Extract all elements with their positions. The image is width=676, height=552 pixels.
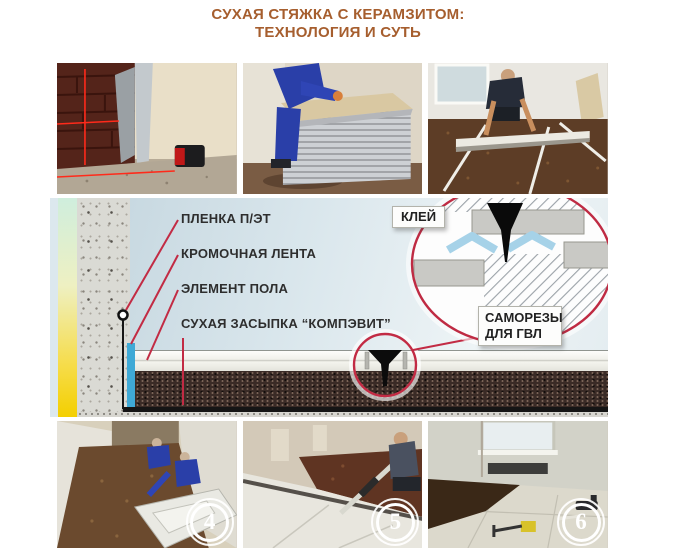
photo-step-5-screeding: 5 xyxy=(243,421,423,548)
keramzit-leveling-image xyxy=(428,63,608,194)
film-top-marker xyxy=(119,311,128,320)
photo-gvl-stack xyxy=(243,63,423,194)
step-number-4: 4 xyxy=(190,503,229,542)
step-badge-6: 6 xyxy=(557,498,605,546)
photo-keramzit-leveling xyxy=(428,63,608,194)
photo-step-6-finished-floor: 6 xyxy=(428,421,608,548)
label-floor-element: ЭЛЕМЕНТ ПОЛА xyxy=(181,281,288,296)
photo-step-4-laying-panels: 4 xyxy=(57,421,237,548)
label-film: ПЛЕНКА П/ЭТ xyxy=(181,211,271,226)
floor-scheme-diagram: ПЛЕНКА П/ЭТ КРОМОЧНАЯ ЛЕНТА ЭЛЕМЕНТ ПОЛА… xyxy=(50,198,608,417)
label-dry-fill: СУХАЯ ЗАСЫПКА “КОМПЭВИТ” xyxy=(181,316,391,331)
screw-small xyxy=(368,350,402,386)
callout-glue: КЛЕЙ xyxy=(392,206,445,228)
photo-row-top xyxy=(57,63,608,194)
step-badge-5: 5 xyxy=(371,498,419,546)
photo-row-bottom: 4 5 xyxy=(57,421,608,548)
callout-screws: САМОРЕЗЫ ДЛЯ ГВЛ xyxy=(478,306,562,346)
photo-laser-marking xyxy=(57,63,237,194)
title-line-2: ТЕХНОЛОГИЯ И СУТЬ xyxy=(0,24,676,42)
title-line-1: СУХАЯ СТЯЖКА С КЕРАМЗИТОМ: xyxy=(0,6,676,24)
gvl-stack-image xyxy=(243,63,423,194)
step-number-5: 5 xyxy=(376,503,415,542)
label-edge-tape: КРОМОЧНАЯ ЛЕНТА xyxy=(181,246,316,261)
step-number-6: 6 xyxy=(562,503,601,542)
laser-marking-image xyxy=(57,63,237,194)
step-badge-4: 4 xyxy=(186,498,234,546)
leader-lines xyxy=(126,220,183,405)
infographic-page: СУХАЯ СТЯЖКА С КЕРАМЗИТОМ: ТЕХНОЛОГИЯ И … xyxy=(0,0,676,552)
page-title: СУХАЯ СТЯЖКА С КЕРАМЗИТОМ: ТЕХНОЛОГИЯ И … xyxy=(0,6,676,42)
